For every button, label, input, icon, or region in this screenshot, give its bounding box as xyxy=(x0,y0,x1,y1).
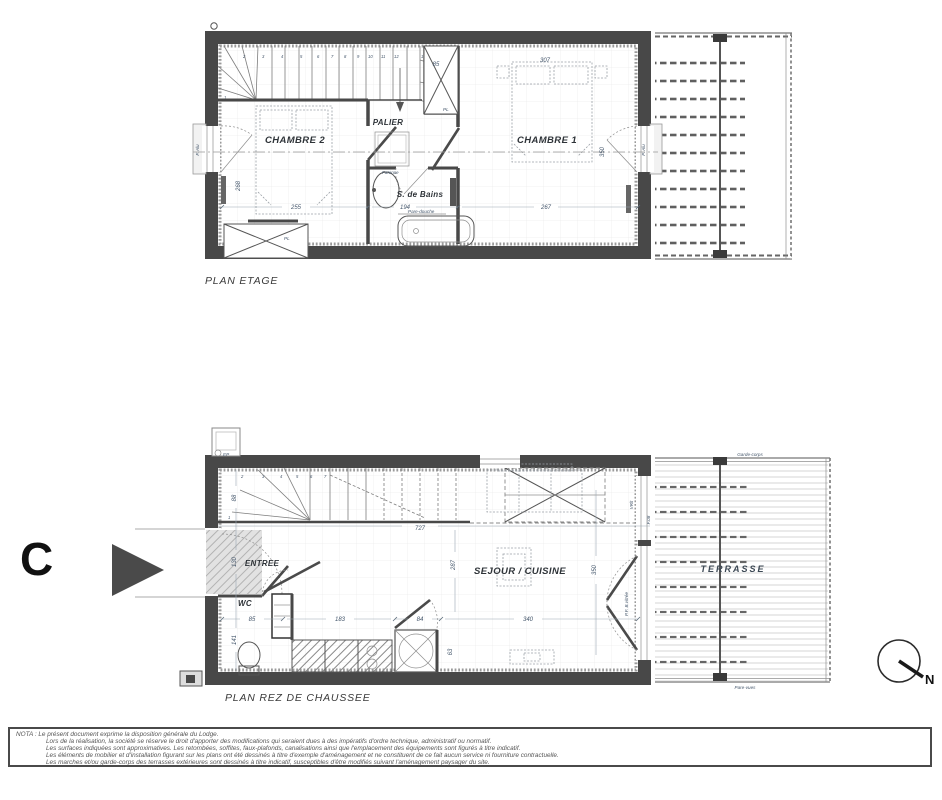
top-wall-window xyxy=(480,455,520,468)
svg-text:183: 183 xyxy=(335,617,346,623)
svg-text:84: 84 xyxy=(417,617,424,623)
label-pare-douche: Pare-douche xyxy=(408,209,435,214)
radiator xyxy=(221,176,226,204)
label-baie: P.F. B.vitrée xyxy=(624,592,629,617)
north-compass: N xyxy=(878,640,934,687)
svg-text:63: 63 xyxy=(448,648,454,655)
nota-line-4: Les éléments de mobilier et d'installati… xyxy=(16,752,924,759)
ep-downspout-box: EP xyxy=(212,428,240,457)
radiator xyxy=(626,185,631,213)
svg-text:267: 267 xyxy=(540,205,552,211)
label-wc: WC xyxy=(238,599,252,608)
label-terrasse: TERRASSE xyxy=(700,564,765,574)
svg-text:255: 255 xyxy=(290,205,302,211)
ground-floor-plan: Garde-corps Pare-vues TERRASSE EP xyxy=(112,428,830,704)
label-sdb: S. de Bains xyxy=(397,190,444,199)
nota-box: NOTA : Le présent document exprime la di… xyxy=(8,727,932,767)
svg-text:340: 340 xyxy=(523,617,534,623)
svg-text:11: 11 xyxy=(381,54,385,59)
upper-closet-top xyxy=(424,46,458,114)
label-pl-bottom: PL xyxy=(284,236,290,241)
label-entree: ENTREE xyxy=(245,559,280,568)
svg-text:85: 85 xyxy=(249,617,256,623)
label-f08: F.08 xyxy=(646,515,651,524)
upper-closet-bottom xyxy=(224,221,308,258)
label-pl-top: PL xyxy=(443,107,449,112)
label-chambre1: CHAMBRE 1 xyxy=(517,135,577,146)
svg-text:12: 12 xyxy=(394,54,399,59)
upper-right-door-label: P. Alu xyxy=(641,144,646,156)
label-ep: EP xyxy=(223,452,230,457)
label-palier: PALIER xyxy=(373,118,404,127)
floorplan-drawing: F. Alu P. Alu xyxy=(0,0,942,800)
label-chambre2: CHAMBRE 2 xyxy=(265,135,325,146)
nota-line-3: Les surfaces indiquées sont approximativ… xyxy=(16,745,924,752)
section-marker-c: C xyxy=(20,536,53,582)
upper-pergola xyxy=(655,33,792,259)
svg-text:350: 350 xyxy=(600,146,606,157)
svg-text:307: 307 xyxy=(540,58,551,64)
floorplan-page: F. Alu P. Alu xyxy=(0,0,942,800)
kitchen-counter xyxy=(292,640,392,672)
svg-text:350: 350 xyxy=(592,564,598,575)
label-sejour: SEJOUR / CUISINE xyxy=(474,566,566,577)
svg-text:88: 88 xyxy=(232,494,238,501)
nota-line-5: Les marches et/ou garde-corps des terras… xyxy=(16,759,924,766)
terrace: Garde-corps Pare-vues TERRASSE xyxy=(655,452,830,690)
survey-point-icon xyxy=(211,23,217,29)
upper-plan-title: PLAN ETAGE xyxy=(205,275,278,287)
upper-floor-plan: F. Alu P. Alu xyxy=(193,23,792,287)
label-vrlt: VRlt xyxy=(629,500,634,509)
bottom-left-box xyxy=(180,671,202,686)
svg-text:10: 10 xyxy=(368,54,373,59)
nota-line-2: Lors de la réalisation, la société se ré… xyxy=(16,738,924,745)
svg-text:727: 727 xyxy=(415,526,426,532)
label-faience: Faïence xyxy=(382,170,399,175)
svg-text:287: 287 xyxy=(451,559,457,571)
upper-left-window-label: F. Alu xyxy=(195,144,200,156)
north-label: N xyxy=(925,672,934,687)
svg-text:141: 141 xyxy=(232,635,238,645)
section-arrow-icon xyxy=(112,544,164,596)
svg-text:85: 85 xyxy=(433,62,440,68)
label-garde-corps: Garde-corps xyxy=(737,452,763,457)
bathroom-radiator xyxy=(450,178,456,206)
nota-line-1: NOTA : Le présent document exprime la di… xyxy=(16,731,924,738)
svg-text:1: 1 xyxy=(228,515,230,520)
label-pare-vues: Pare-vues xyxy=(735,685,757,690)
svg-text:130: 130 xyxy=(232,556,238,567)
ground-plan-title: PLAN REZ DE CHAUSSEE xyxy=(225,692,371,704)
svg-text:268: 268 xyxy=(236,180,242,192)
